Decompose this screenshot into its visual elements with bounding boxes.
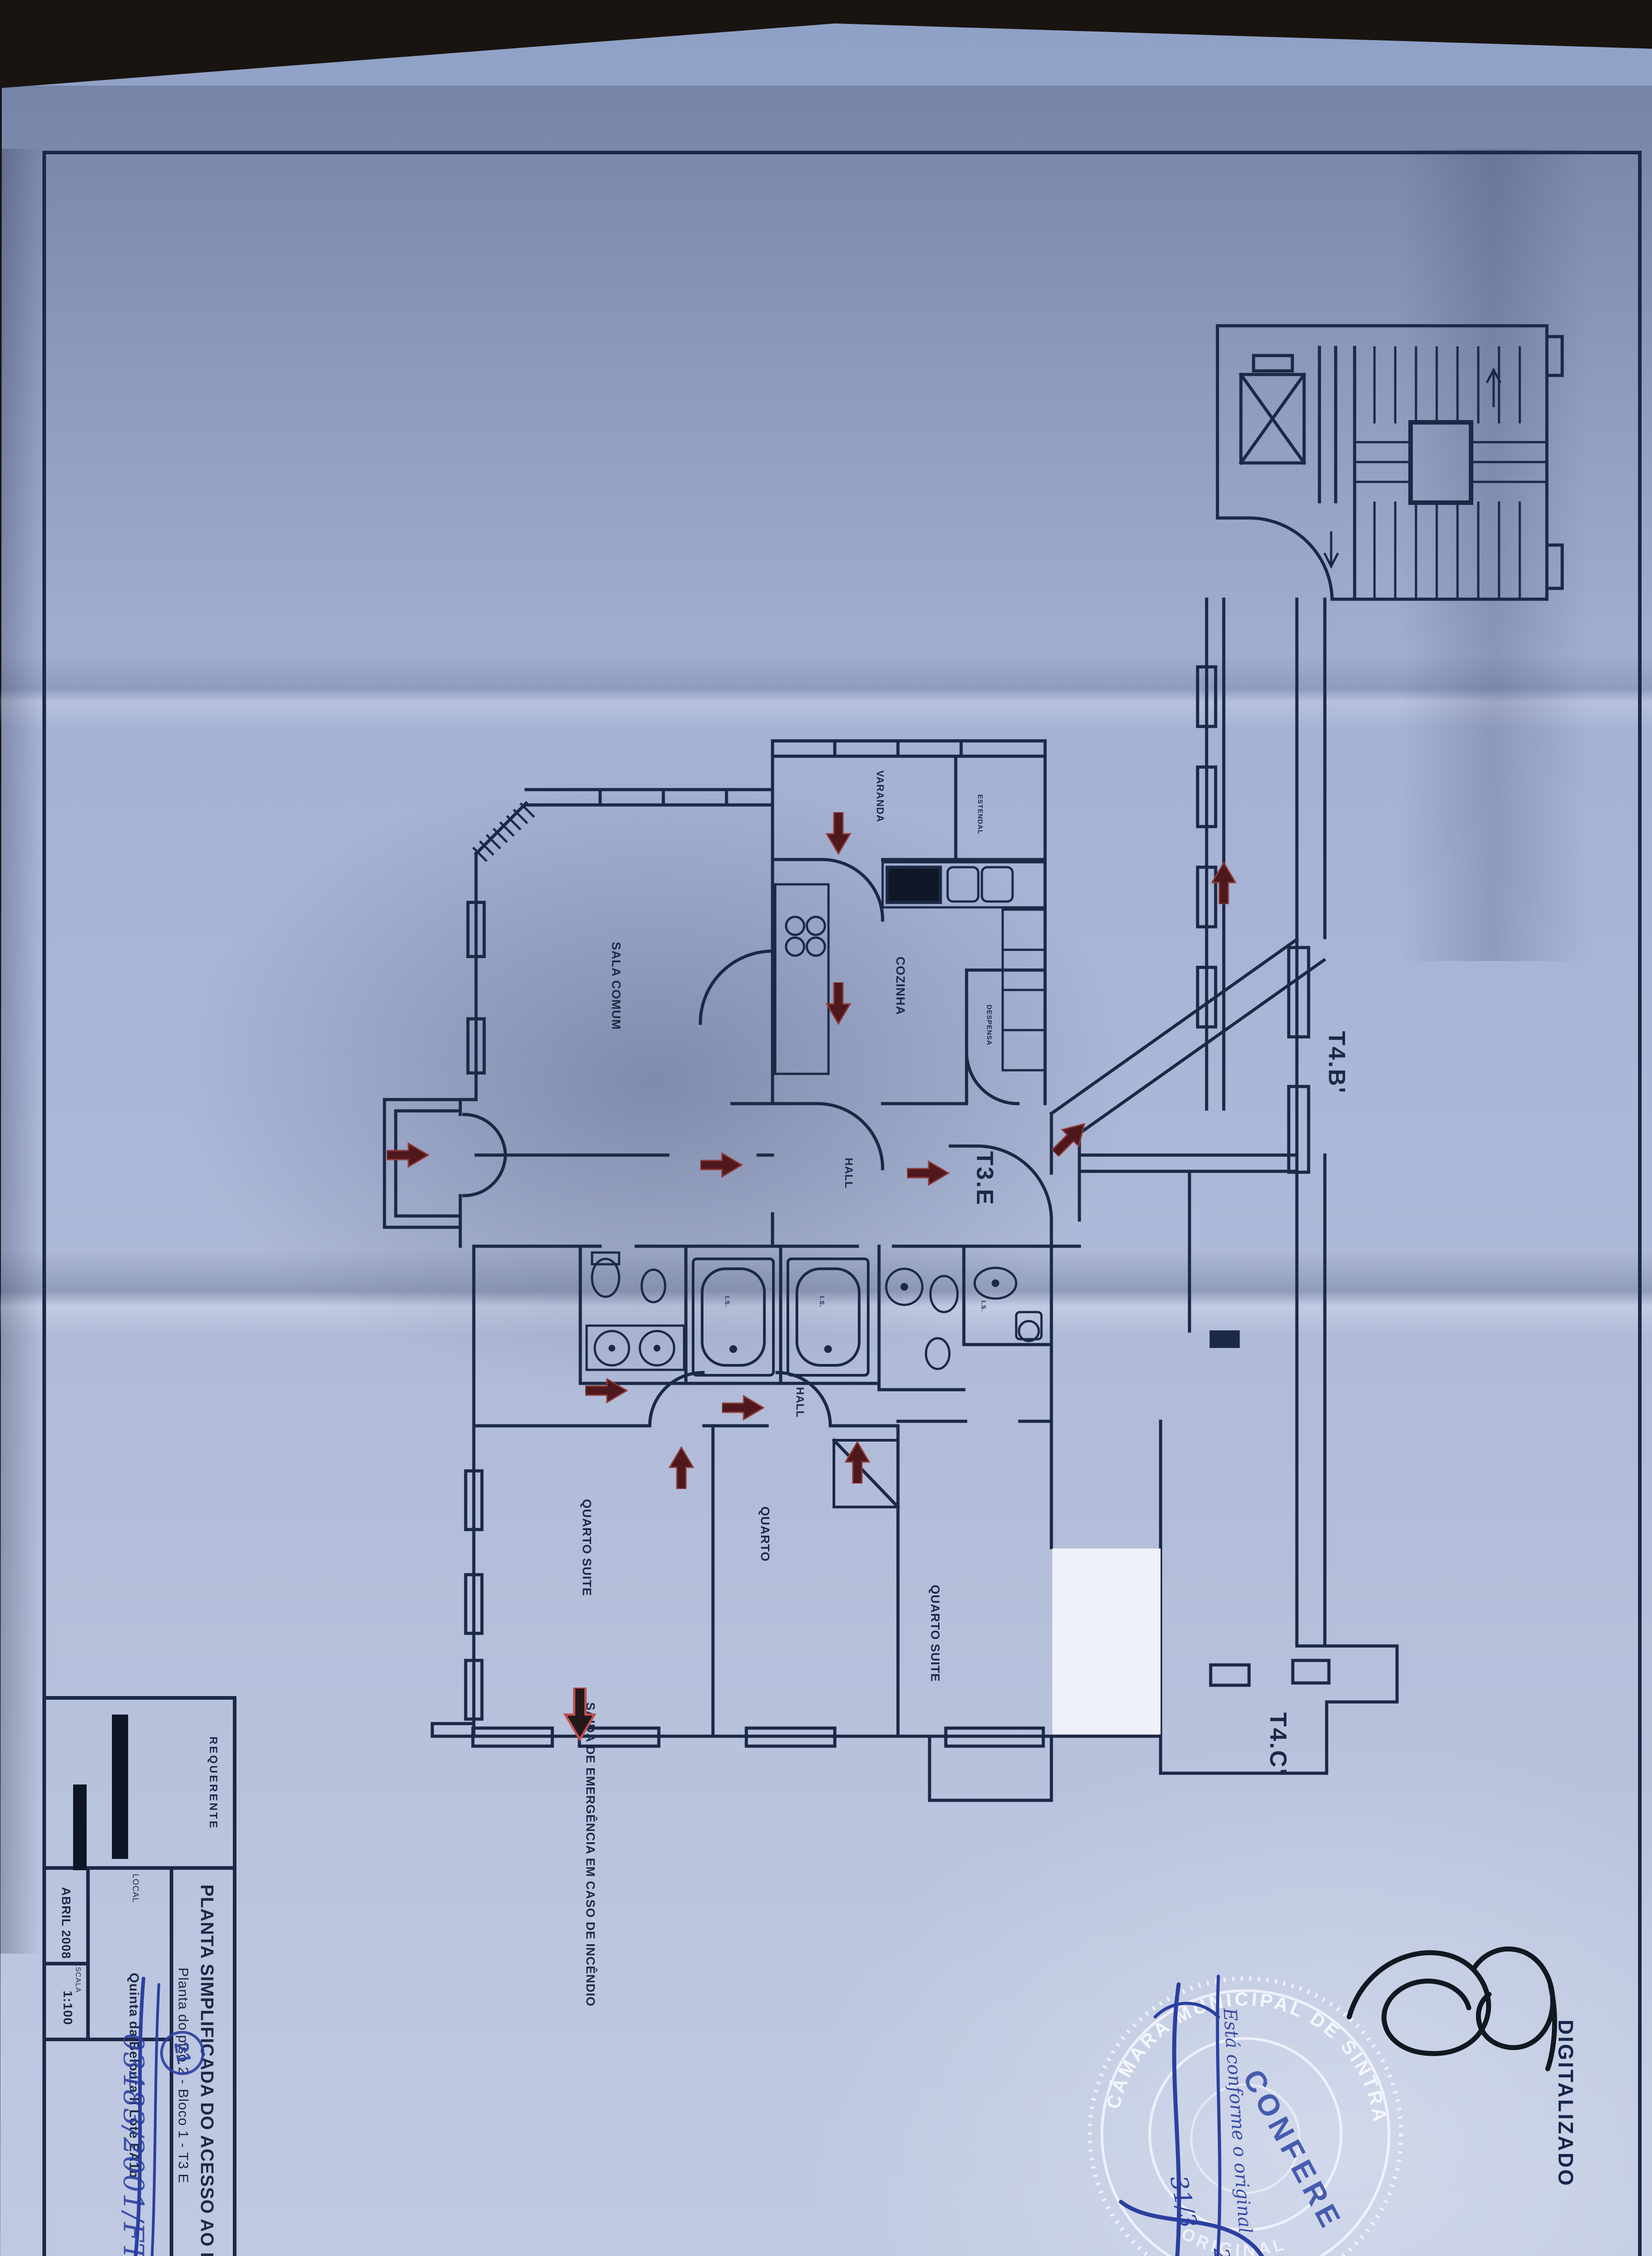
- flow-arrow-quarto-door: [844, 1440, 871, 1484]
- blue-ink-strokes: [114, 1976, 1268, 2256]
- flow-arrow-cozinha: [825, 982, 852, 1026]
- flow-arrow-entrance: [387, 1142, 430, 1169]
- room-label-hall-lower: HALL: [793, 1387, 806, 1418]
- room-label-despensa: DESPENSA: [986, 1005, 993, 1046]
- room-label-quarto-suite-1: QUARTO SUITE: [580, 1499, 594, 1596]
- flow-arrow-hall-sala: [700, 1151, 744, 1179]
- room-label-hall-upper: HALL: [842, 1158, 855, 1188]
- room-label-is1: I.S.: [724, 1296, 731, 1307]
- local-label: LOCAL: [131, 1874, 140, 1903]
- unit-label-t4c: T4.C': [1264, 1712, 1291, 1775]
- stair-core: [1217, 326, 1562, 599]
- emergency-exit-arrow: [563, 1687, 597, 1742]
- whiteout-patch: [1052, 1549, 1161, 1734]
- room-label-is2: I.S.: [819, 1296, 826, 1307]
- room-label-quarto: QUARTO: [758, 1507, 772, 1562]
- flow-arrow-corridor-up: [1210, 861, 1237, 904]
- room-label-varanda: VARANDA: [874, 770, 886, 822]
- room-label-sala: SALA COMUM: [609, 942, 623, 1030]
- access-gallery: [950, 599, 1397, 1773]
- room-label-cozinha: COZINHA: [893, 957, 907, 1015]
- scale-label: ESCALA: [74, 1961, 82, 1992]
- flow-arrow-hall-lower: [722, 1394, 765, 1421]
- signature: [1349, 1949, 1555, 2069]
- emergency-exit-note: SAIDA DE EMERGÊNCIA EM CASO DE INCÊNDIO: [583, 1702, 597, 2007]
- drawing-title: PLANTA SIMPLIFICADA DO ACESSO AO FOGO: [197, 1885, 217, 2256]
- drawing-date: ABRIL 2008: [59, 1887, 73, 1959]
- room-label-quarto-suite-2: QUARTO SUITE: [928, 1585, 942, 1682]
- unit-label-t3e: T3.E: [971, 1151, 998, 1206]
- handwritten-process-ref: 03483/2001/FT: [117, 2033, 150, 2256]
- room-label-estendal: ESTENDAL: [976, 795, 984, 835]
- applicant-stamp-redacted-1: [112, 1715, 128, 1859]
- flow-arrow-suite1: [585, 1377, 629, 1404]
- badge-number: 21: [169, 2040, 195, 2066]
- flow-arrow-varanda: [825, 812, 852, 855]
- scale-value: 1:100: [60, 1991, 75, 2025]
- digitalizado-watermark: DIGITALIZADO: [1554, 2020, 1578, 2187]
- drawing-subtitle: Planta do piso 2 - Bloco 1 - T3 E: [175, 1968, 191, 2184]
- requerente-label: REQUERENTE: [207, 1737, 219, 1830]
- scanned-floor-plan-photo: CÂMARA MUNICIPAL DE SINTRA ORIGINAL SALA…: [0, 0, 1652, 2256]
- applicant-stamp-redacted-2: [73, 1784, 87, 1870]
- unit-label-t4b: T4.B': [1323, 1031, 1350, 1094]
- flow-arrow-front-door: [907, 1160, 950, 1187]
- apartment-walls: [384, 741, 1161, 1800]
- flow-arrow-suite1-door: [668, 1446, 695, 1489]
- plan-drawing: CÂMARA MUNICIPAL DE SINTRA ORIGINAL: [0, 0, 1652, 2256]
- drawing-frame: [44, 153, 1640, 2256]
- room-label-is3: I.S.: [980, 1300, 987, 1312]
